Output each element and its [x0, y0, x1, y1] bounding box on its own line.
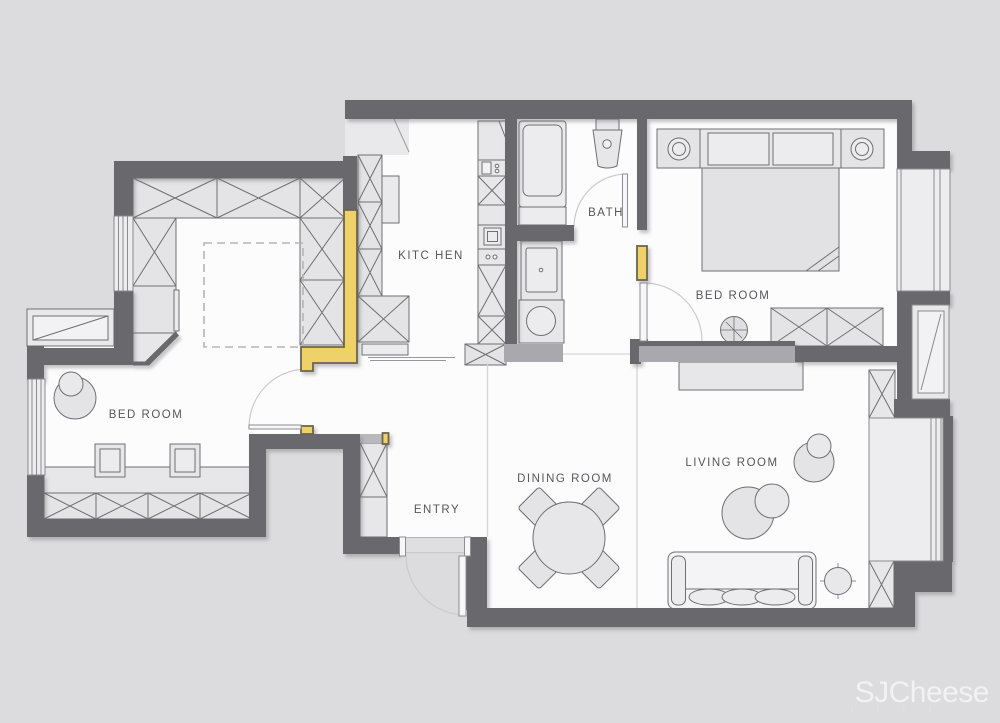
svg-text:BED ROOM: BED ROOM — [109, 409, 184, 421]
svg-text:DINING ROOM: DINING ROOM — [517, 473, 613, 485]
svg-text:BED ROOM: BED ROOM — [696, 290, 771, 302]
svg-text:KITC HEN: KITC HEN — [398, 250, 464, 262]
svg-text:||||: |||| — [851, 705, 955, 714]
svg-text:BATH: BATH — [588, 207, 624, 219]
svg-text:LIVING ROOM: LIVING ROOM — [685, 457, 778, 469]
svg-text:ENTRY: ENTRY — [414, 504, 460, 516]
